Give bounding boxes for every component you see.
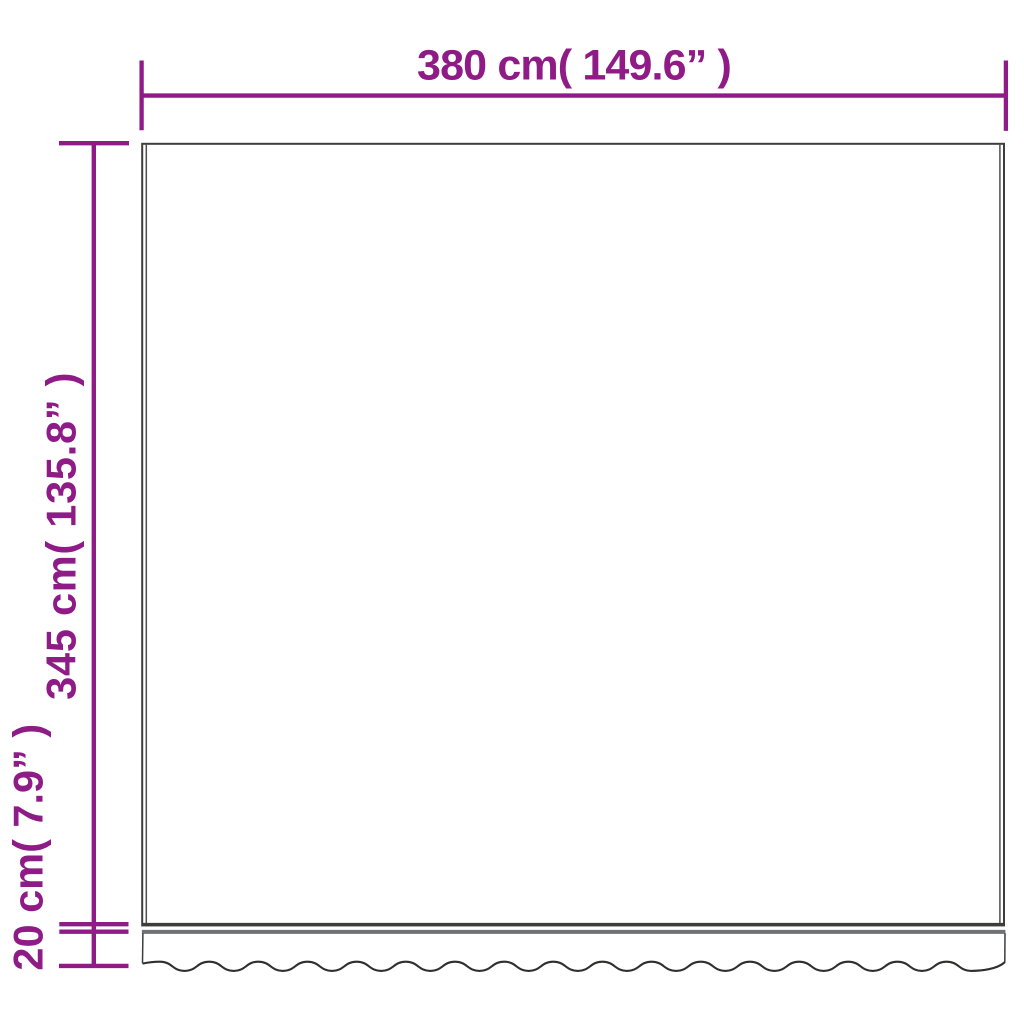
svg-text:380 cm( 149.6” ): 380 cm( 149.6” )	[417, 41, 731, 89]
svg-text:20 cm( 7.9” ): 20 cm( 7.9” )	[4, 724, 51, 971]
svg-text:345 cm( 135.8” ): 345 cm( 135.8” )	[38, 372, 85, 700]
